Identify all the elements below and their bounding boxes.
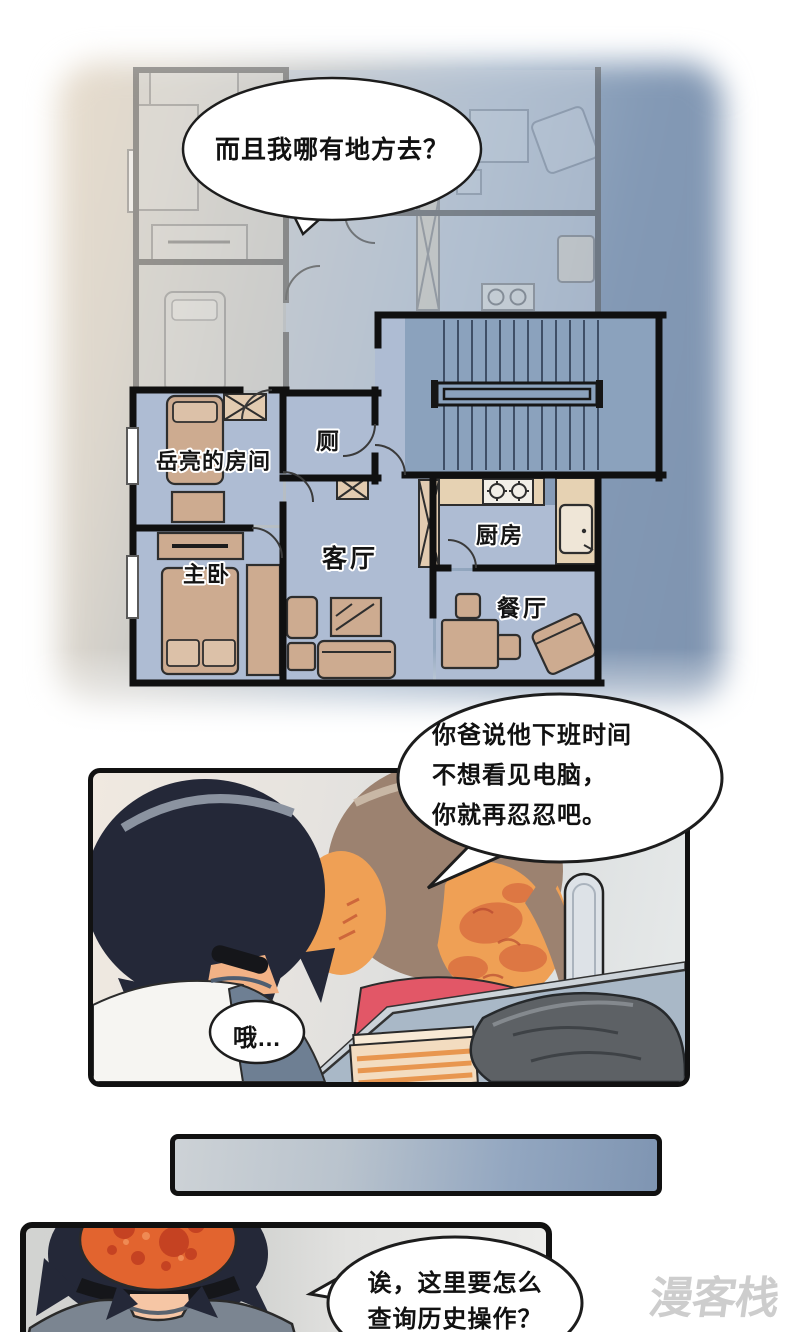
side-table-icon [288, 643, 315, 670]
bubble-mother-line3: 你就再忍忍吧。 [432, 796, 712, 836]
bubble-mother-line2: 不想看见电脑， [432, 756, 712, 796]
wardrobe-icon [247, 565, 280, 675]
floorplan-illustration: 岳亮的房间 厕 客厅 厨房 主卧 餐厅 [0, 0, 800, 745]
room-label-living: 客厅 [322, 544, 378, 573]
armchair-icon [287, 597, 317, 638]
bubble-ask-line1: 诶，这里要怎么 [348, 1266, 562, 1302]
room-label-kitchen: 厨房 [476, 523, 524, 548]
bubble-ask-line2: 查询历史操作？ [348, 1302, 562, 1332]
stool-icon-2 [496, 635, 520, 659]
room-label-dining: 餐厅 [497, 596, 549, 621]
stool-icon [456, 594, 480, 618]
daughter-back-view [26, 1228, 298, 1332]
window-icon [127, 428, 138, 484]
bubble-ask-text: 诶，这里要怎么 查询历史操作？ [348, 1266, 562, 1332]
room-label-toilet: 厕 [316, 429, 339, 454]
mankezhan-watermark: 漫客栈 [646, 1262, 800, 1326]
dining-table-icon [442, 620, 498, 668]
room-label-master: 主卧 [183, 562, 231, 587]
bubble-mother-line1: 你爸说他下班时间 [432, 716, 712, 756]
comic-page: 岳亮的房间 厕 客厅 厨房 主卧 餐厅 [0, 0, 800, 1332]
window-icon-2 [127, 556, 138, 618]
desk-icon [172, 492, 224, 522]
faded-door [558, 236, 594, 282]
panel-gradient-bar [170, 1134, 662, 1196]
bubble-oh-text: 哦… [210, 1018, 304, 1053]
sofa-icon [318, 641, 395, 678]
paper-stack [349, 1027, 478, 1082]
bubble-mother-text: 你爸说他下班时间 不想看见电脑， 你就再忍忍吧。 [432, 716, 712, 836]
room-label-yueliang: 岳亮的房间 [156, 449, 271, 474]
bubble-top-text: 而且我哪有地方去？ [192, 133, 472, 167]
faded-cabinet [138, 105, 198, 210]
